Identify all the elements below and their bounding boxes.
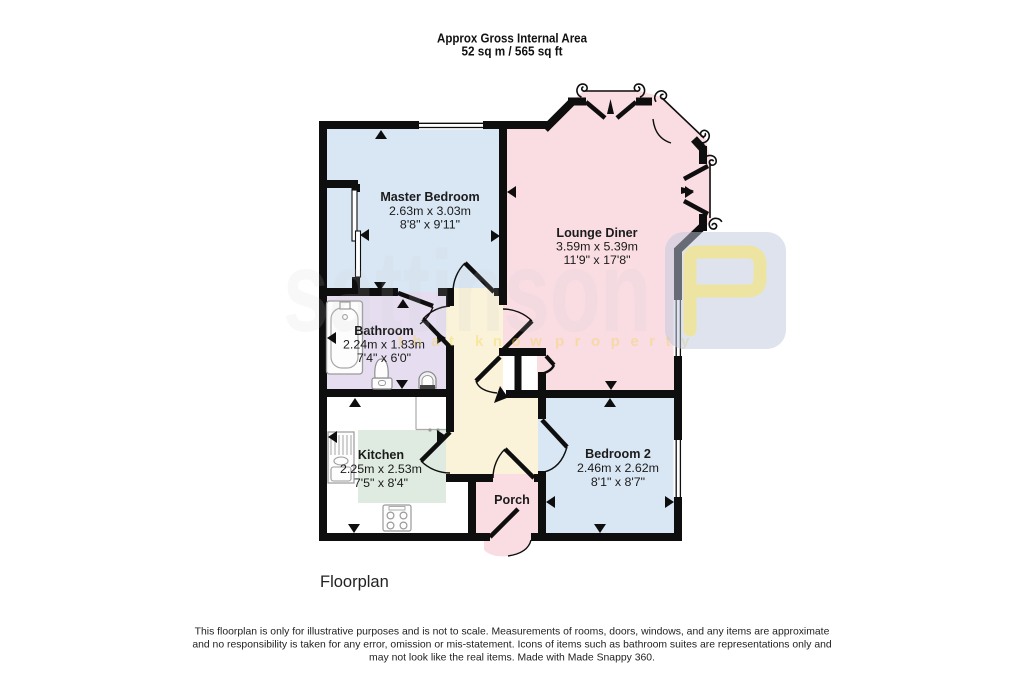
svg-text:2.46m x 2.62m: 2.46m x 2.62m xyxy=(577,461,659,475)
svg-text:that: that xyxy=(398,333,464,350)
svg-text:8'1" x 8'7": 8'1" x 8'7" xyxy=(591,475,645,489)
svg-text:This floorplan is only for ill: This floorplan is only for illustrative … xyxy=(195,627,830,638)
svg-text:Bedroom 2: Bedroom 2 xyxy=(585,447,651,461)
svg-text:2.25m x 2.53m: 2.25m x 2.53m xyxy=(340,462,422,476)
svg-text:Porch: Porch xyxy=(494,493,530,507)
svg-text:7'5" x 8'4": 7'5" x 8'4" xyxy=(354,476,408,490)
svg-text:Floorplan: Floorplan xyxy=(320,573,389,591)
svg-text:may not look like the real ite: may not look like the real items. Made w… xyxy=(369,653,655,664)
svg-text:and no responsibility is taken: and no responsibility is taken for any e… xyxy=(192,640,832,651)
svg-text:2.63m x 3.03m: 2.63m x 3.03m xyxy=(389,204,471,218)
svg-text:Kitchen: Kitchen xyxy=(358,448,404,462)
svg-text:know: know xyxy=(475,333,551,350)
svg-text:Master Bedroom: Master Bedroom xyxy=(380,190,479,204)
svg-text:52 sq m / 565 sq ft: 52 sq m / 565 sq ft xyxy=(462,44,564,59)
